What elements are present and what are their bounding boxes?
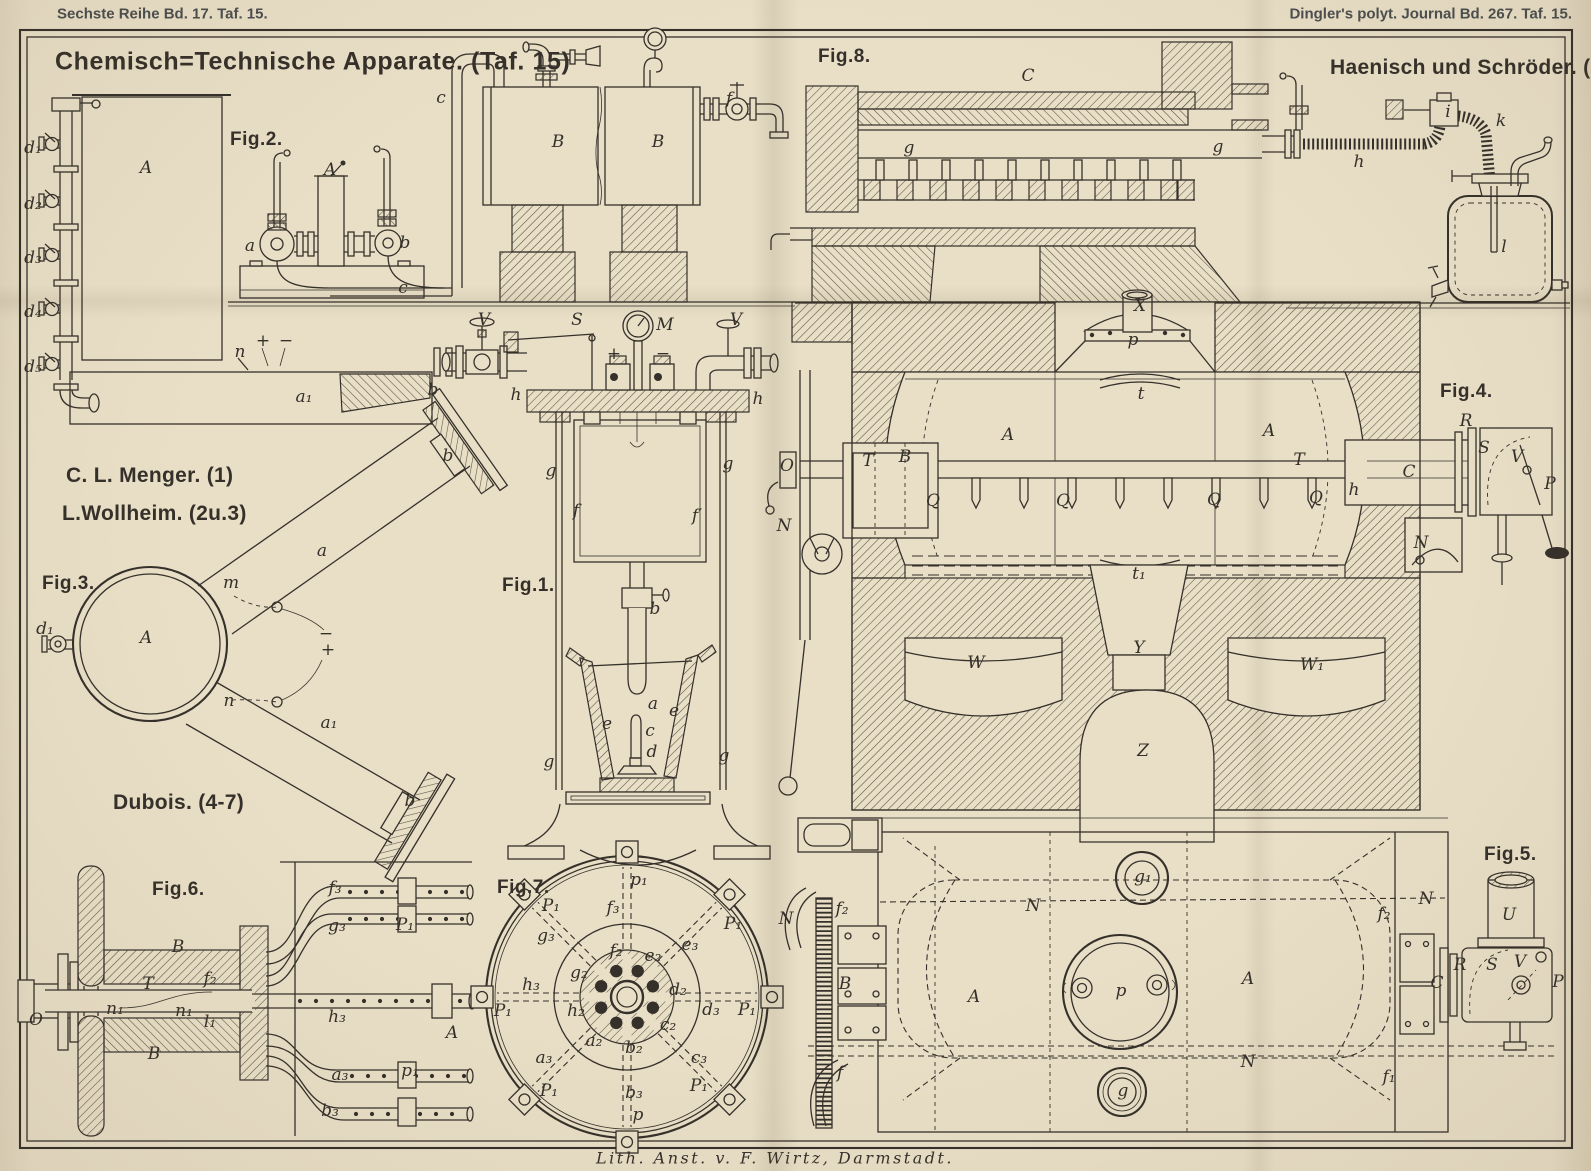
part-label-fig4: T xyxy=(1293,450,1304,470)
part-label-fig5: N xyxy=(779,909,794,929)
part-label-fig1: f′ xyxy=(692,506,702,526)
part-label-fig5: S xyxy=(1486,955,1498,975)
part-label-fig2: + xyxy=(256,331,270,351)
attribution: L.Wollheim. (2u.3) xyxy=(62,502,247,526)
part-label-fig2: a xyxy=(245,236,255,256)
attribution: Dubois. (4-7) xyxy=(113,791,244,815)
part-label-fig6: g₃ xyxy=(328,916,346,936)
part-label-fig7: h₃ xyxy=(522,975,540,995)
part-label-fig5: C xyxy=(1430,973,1443,993)
part-label-fig4: S xyxy=(1478,438,1490,458)
part-label-fig1: + xyxy=(607,344,621,364)
part-label-fig4: t xyxy=(1138,384,1145,404)
part-label-fig6: P₁ xyxy=(396,915,414,935)
part-label-fig7: a₂ xyxy=(586,1031,603,1051)
part-label-fig2: d₁ xyxy=(24,138,42,158)
part-label-fig2: A xyxy=(140,158,152,178)
part-label-fig4: C xyxy=(1402,462,1415,482)
part-label-fig7: P₁ xyxy=(738,1000,756,1020)
part-label-fig5: N xyxy=(1419,889,1434,909)
part-label-fig4: p xyxy=(1128,330,1139,350)
part-label-fig7: P₁ xyxy=(690,1076,708,1096)
figure-label-fig1: Fig.1. xyxy=(502,575,555,597)
part-label-fig4: R xyxy=(1460,411,1473,431)
part-label-fig5: g₁ xyxy=(1134,867,1152,887)
part-label-fig8: g xyxy=(1213,137,1224,157)
part-label-fig2: d₅ xyxy=(24,357,42,377)
fig6-drawing xyxy=(18,862,475,1136)
part-label-fig7: d₃ xyxy=(702,1000,720,1020)
part-label-fig4: B xyxy=(899,447,912,467)
journal-ref: Dingler's polyt. Journal Bd. 267. Taf. 1… xyxy=(1289,6,1572,23)
part-label-fig5: N xyxy=(1241,1052,1256,1072)
part-label-fig7: P₁ xyxy=(542,896,560,916)
part-label-fig4: Q xyxy=(1056,491,1070,511)
part-label-fig7: p xyxy=(633,1105,644,1125)
part-label-fig1: g xyxy=(723,454,734,474)
part-label-fig2: B xyxy=(652,132,665,152)
part-label-fig7: g₃ xyxy=(537,926,555,946)
part-label-fig7: h₂ xyxy=(567,1001,585,1021)
part-label-fig2: − xyxy=(279,331,293,351)
part-label-fig3: a xyxy=(317,541,327,561)
part-label-fig7: p₁ xyxy=(630,870,648,890)
part-label-fig1: c xyxy=(645,721,655,741)
part-label-fig4: Q xyxy=(1309,488,1323,508)
figure-label-fig4: Fig.4. xyxy=(1440,381,1493,403)
part-label-fig5: f₂ xyxy=(835,899,848,919)
part-label-fig1: − xyxy=(656,344,670,364)
part-label-fig4: Q xyxy=(926,491,940,511)
part-label-fig8: i xyxy=(1445,102,1450,122)
part-label-fig4: Y xyxy=(1133,638,1144,658)
part-label-fig5: f₂ xyxy=(1377,904,1390,924)
part-label-fig3: n xyxy=(224,691,235,711)
part-label-fig2: d₄ xyxy=(24,302,42,322)
fig8-drawing xyxy=(771,42,1570,308)
part-label-fig5: N xyxy=(1026,896,1041,916)
part-label-fig4: A xyxy=(1263,421,1275,441)
fig3-drawing xyxy=(42,389,507,882)
part-label-fig3: a₁ xyxy=(321,713,338,733)
part-label-fig5: f xyxy=(837,1063,843,1083)
part-label-fig2: A xyxy=(324,160,336,180)
lithographer-credit: Lith. Anst. v. F. Wirtz, Darmstadt. xyxy=(596,1149,954,1168)
part-label-fig3: + xyxy=(321,640,335,660)
part-label-fig7: P₁ xyxy=(494,1001,512,1021)
part-label-fig2: c xyxy=(436,88,446,108)
part-label-fig6: f₃ xyxy=(328,878,341,898)
part-label-fig2: b xyxy=(400,233,411,253)
part-label-fig2: c xyxy=(398,278,408,298)
part-label-fig3: b xyxy=(405,791,416,811)
fig1-drawing xyxy=(442,311,778,865)
part-label-fig5: f₁ xyxy=(1382,1067,1395,1087)
part-label-fig2: a₁ xyxy=(296,387,313,407)
part-label-fig1: V xyxy=(730,310,742,330)
part-label-fig7: b₂ xyxy=(625,1038,643,1058)
part-label-fig4: P xyxy=(1544,474,1555,494)
part-label-fig4: O xyxy=(780,456,794,476)
part-label-fig7: c₃ xyxy=(691,1048,707,1068)
part-label-fig1: a xyxy=(648,694,658,714)
part-label-fig6: p₁ xyxy=(401,1061,419,1081)
part-label-fig1: V xyxy=(478,310,490,330)
part-label-fig7: f₃ xyxy=(606,898,619,918)
part-label-fig4: t₁ xyxy=(1132,564,1146,584)
part-label-fig4: h xyxy=(1349,480,1360,500)
part-label-fig7: P₁ xyxy=(724,914,742,934)
part-label-fig6: n₁ xyxy=(106,999,124,1019)
part-label-fig1: S xyxy=(571,310,583,330)
part-label-fig1: g xyxy=(544,752,555,772)
part-label-fig8: l xyxy=(1501,237,1506,257)
part-label-fig6: T xyxy=(142,974,153,994)
attribution: C. L. Menger. (1) xyxy=(66,464,233,488)
part-label-fig4: V xyxy=(1511,447,1523,467)
part-label-fig4: Q xyxy=(1207,490,1221,510)
part-label-fig4: A xyxy=(1002,425,1014,445)
lithograph-plate: Sechste Reihe Bd. 17. Taf. 15. Dingler's… xyxy=(0,0,1591,1171)
figure-label-fig8: Fig.8. xyxy=(818,46,871,68)
part-label-fig7: a₃ xyxy=(536,1048,553,1068)
part-label-fig7: f₂ xyxy=(609,941,622,961)
part-label-fig1: e xyxy=(669,701,679,721)
part-label-fig6: l₁ xyxy=(204,1012,216,1032)
part-label-fig5: A xyxy=(968,987,980,1007)
part-label-fig4: N xyxy=(1414,533,1429,553)
part-label-fig5: R xyxy=(1454,955,1467,975)
part-label-fig2: B xyxy=(552,132,565,152)
part-label-fig6: B xyxy=(148,1044,161,1064)
part-label-fig6: O xyxy=(29,1010,43,1030)
part-label-fig8: k xyxy=(1496,111,1506,131)
part-label-fig7: d₂ xyxy=(669,980,687,1000)
figure-label-fig3: Fig.3. xyxy=(42,573,95,595)
part-label-fig1: h xyxy=(753,389,764,409)
part-label-fig6: A xyxy=(446,1023,458,1043)
part-label-fig5: p xyxy=(1116,981,1127,1001)
part-label-fig7: b₃ xyxy=(625,1083,643,1103)
part-label-fig3: m xyxy=(223,573,239,593)
part-label-fig5: A xyxy=(1242,969,1254,989)
part-label-fig2: b xyxy=(428,380,439,400)
part-label-fig1: f xyxy=(573,501,579,521)
fig2-drawing xyxy=(39,28,795,424)
part-label-fig1: g xyxy=(546,461,557,481)
part-label-fig5: B xyxy=(839,974,852,994)
part-label-fig8: g xyxy=(904,138,915,158)
fig4-drawing xyxy=(766,290,1569,842)
part-label-fig6: f₂ xyxy=(203,969,216,989)
part-label-fig6: n₁ xyxy=(175,1001,193,1021)
part-label-fig5: g xyxy=(1118,1081,1129,1101)
part-label-fig7: e₂ xyxy=(645,946,662,966)
part-label-fig2: n xyxy=(235,342,246,362)
part-label-fig2: f xyxy=(726,89,732,109)
part-label-fig7: g₂ xyxy=(570,963,588,983)
part-label-fig3: d₁ xyxy=(36,619,54,639)
part-label-fig3: A xyxy=(140,628,152,648)
part-label-fig7: P₁ xyxy=(540,1081,558,1101)
part-label-fig2: d₂ xyxy=(24,194,42,214)
figure-label-fig2: Fig.2. xyxy=(230,129,283,151)
part-label-fig4: W₁ xyxy=(1300,655,1324,675)
part-label-fig1: e xyxy=(602,714,612,734)
part-label-fig1: d xyxy=(647,742,658,762)
part-label-fig5: V xyxy=(1514,952,1526,972)
part-label-fig4: T xyxy=(862,451,873,471)
part-label-fig6: B xyxy=(172,937,185,957)
part-label-fig7: c₂ xyxy=(660,1015,676,1035)
part-label-fig2: d₃ xyxy=(24,248,42,268)
part-label-fig1: h xyxy=(511,385,522,405)
part-label-fig1: M xyxy=(656,315,673,335)
part-label-fig1: g xyxy=(719,746,730,766)
part-label-fig4: N xyxy=(777,516,792,536)
part-label-fig4: X xyxy=(1134,296,1146,316)
part-label-fig3: b xyxy=(443,446,454,466)
attribution: Haenisch und Schröder. (8) xyxy=(1330,56,1591,80)
part-label-fig4: Z xyxy=(1137,741,1149,761)
part-label-fig5: P xyxy=(1552,972,1563,992)
part-label-fig7: e₃ xyxy=(682,935,699,955)
series-ref: Sechste Reihe Bd. 17. Taf. 15. xyxy=(57,6,268,23)
figure-label-fig5: Fig.5. xyxy=(1484,844,1537,866)
part-label-fig5: U xyxy=(1502,905,1516,925)
part-label-fig6: a₃ xyxy=(332,1065,349,1085)
part-label-fig6: b₃ xyxy=(321,1101,339,1121)
part-label-fig1: b xyxy=(650,599,661,619)
part-label-fig6: h₃ xyxy=(328,1007,346,1027)
part-label-fig4: W xyxy=(967,653,984,673)
part-label-fig8: h xyxy=(1354,152,1365,172)
plate-title: Chemisch=Technische Apparate. (Taf. 15) xyxy=(55,48,570,77)
part-label-fig8: C xyxy=(1021,66,1034,86)
figure-label-fig6: Fig.6. xyxy=(152,879,205,901)
